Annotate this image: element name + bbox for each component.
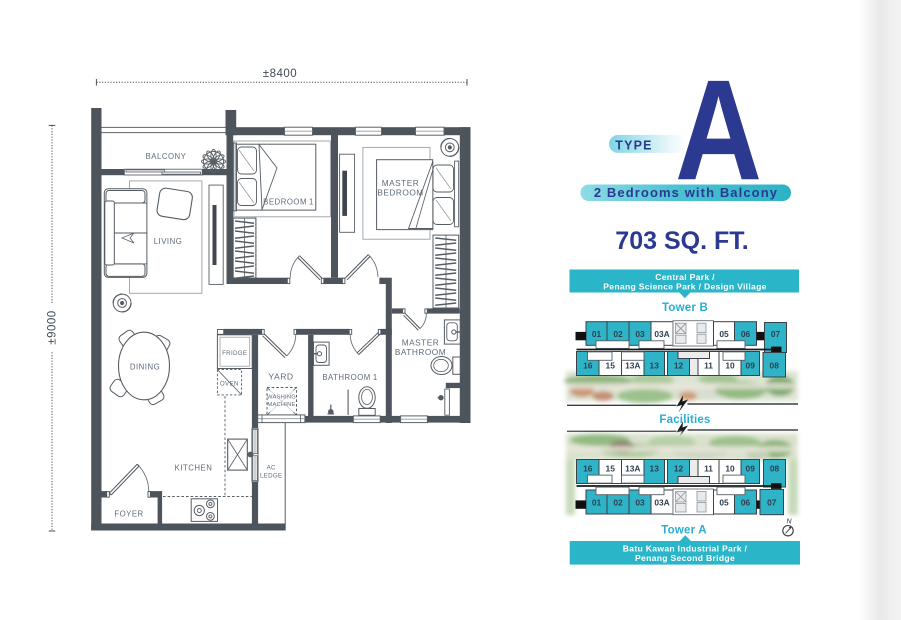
svg-text:06: 06 <box>741 498 751 508</box>
svg-text:15: 15 <box>606 464 616 474</box>
svg-text:07: 07 <box>771 329 781 339</box>
svg-text:03A: 03A <box>654 498 669 508</box>
svg-text:Tower B: Tower B <box>662 302 708 314</box>
svg-text:08: 08 <box>770 464 780 474</box>
svg-text:LEDGE: LEDGE <box>260 473 282 480</box>
svg-text:13: 13 <box>650 464 660 474</box>
svg-text:KITCHEN: KITCHEN <box>175 464 213 473</box>
svg-text:12: 12 <box>674 361 684 371</box>
svg-text:±8400: ±8400 <box>263 68 297 80</box>
svg-text:13A: 13A <box>625 361 640 371</box>
svg-text:2 Bedrooms with Balcony: 2 Bedrooms with Balcony <box>594 185 778 200</box>
svg-text:01: 01 <box>592 498 602 508</box>
svg-text:10: 10 <box>725 464 735 474</box>
svg-text:BALCONY: BALCONY <box>146 152 187 161</box>
svg-text:06: 06 <box>741 329 751 339</box>
svg-text:Tower A: Tower A <box>661 525 707 537</box>
svg-text:BEDROOM 1: BEDROOM 1 <box>263 198 314 207</box>
svg-text:MACHINE: MACHINE <box>267 402 295 408</box>
svg-text:MASTER: MASTER <box>382 178 420 188</box>
svg-text:03A: 03A <box>654 329 669 339</box>
svg-text:BATHROOM: BATHROOM <box>395 347 446 357</box>
svg-text:13: 13 <box>650 361 660 371</box>
svg-text:03: 03 <box>635 498 645 508</box>
svg-text:TYPE: TYPE <box>615 138 652 152</box>
svg-text:BEDROOM: BEDROOM <box>377 188 423 198</box>
svg-text:08: 08 <box>770 361 780 371</box>
svg-text:Penang Second Bridge: Penang Second Bridge <box>635 553 735 563</box>
svg-text:FRIDGE: FRIDGE <box>222 350 247 357</box>
svg-text:09: 09 <box>746 464 756 474</box>
svg-text:Batu Kawan Industrial Park /: Batu Kawan Industrial Park / <box>623 543 748 553</box>
svg-text:WASHING: WASHING <box>267 395 296 401</box>
svg-text:LIVING: LIVING <box>154 237 183 246</box>
svg-text:11: 11 <box>704 464 713 474</box>
svg-text:±9000: ±9000 <box>47 310 59 344</box>
svg-text:OVEN: OVEN <box>220 380 239 387</box>
svg-text:03: 03 <box>635 329 645 339</box>
svg-text:10: 10 <box>725 361 735 371</box>
svg-text:AC: AC <box>267 465 276 472</box>
svg-text:Penang Science Park / Design V: Penang Science Park / Design Village <box>603 282 767 292</box>
svg-text:16: 16 <box>583 361 593 371</box>
svg-text:07: 07 <box>767 498 777 508</box>
svg-text:02: 02 <box>613 329 623 339</box>
svg-text:703 SQ. FT.: 703 SQ. FT. <box>615 227 748 255</box>
svg-text:05: 05 <box>719 329 729 339</box>
svg-text:02: 02 <box>613 498 623 508</box>
svg-text:FOYER: FOYER <box>114 510 143 519</box>
svg-text:MASTER: MASTER <box>402 338 440 348</box>
svg-text:16: 16 <box>583 464 593 474</box>
svg-text:BATHROOM 1: BATHROOM 1 <box>322 373 377 382</box>
svg-text:11: 11 <box>704 361 713 371</box>
svg-text:12: 12 <box>674 464 684 474</box>
svg-text:15: 15 <box>606 361 616 371</box>
svg-text:13A: 13A <box>625 464 640 474</box>
svg-text:Facilities: Facilities <box>659 414 710 426</box>
svg-text:09: 09 <box>746 361 756 371</box>
svg-text:05: 05 <box>719 498 729 508</box>
svg-text:DINING: DINING <box>130 363 160 372</box>
svg-text:YARD: YARD <box>268 372 293 382</box>
svg-text:01: 01 <box>592 329 602 339</box>
